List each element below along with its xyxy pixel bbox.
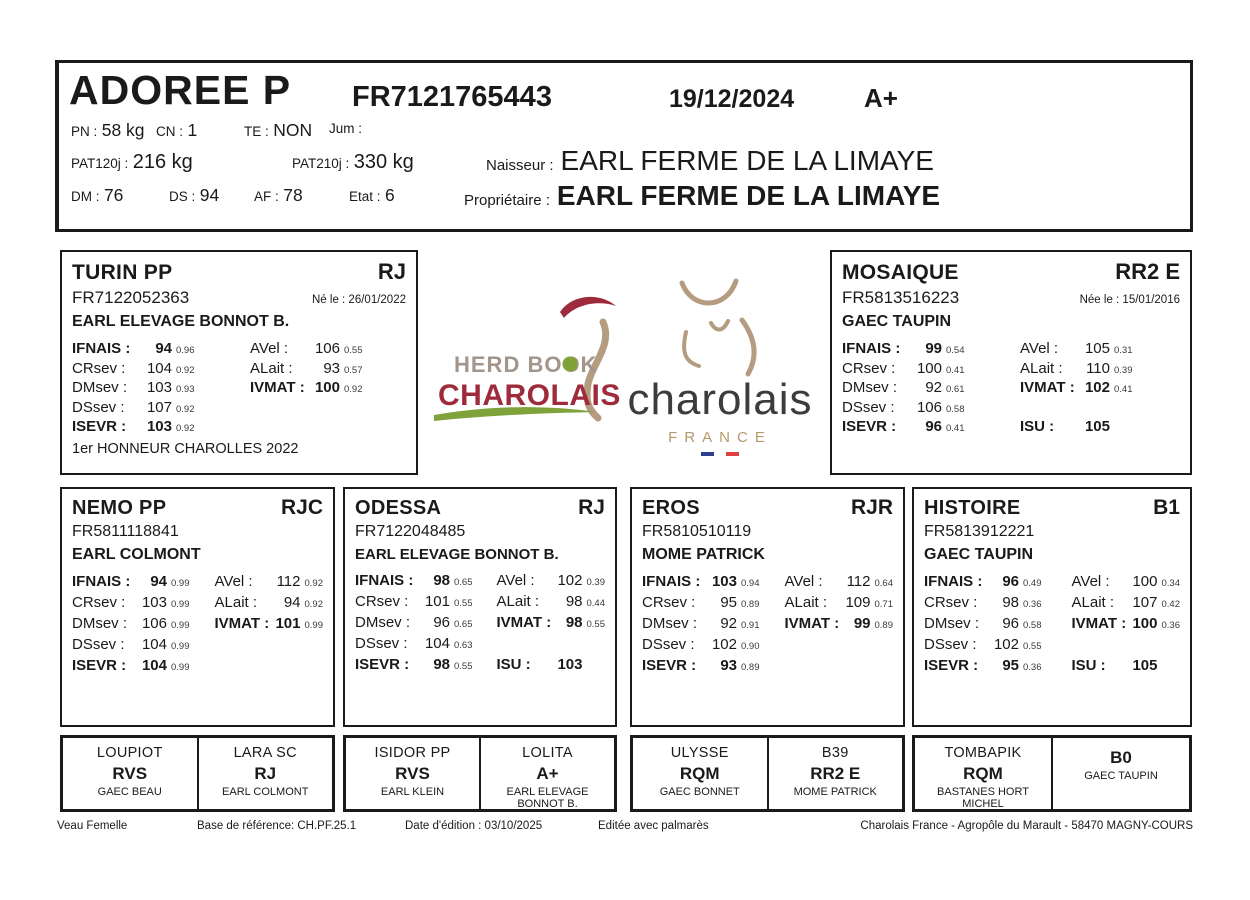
stat-value: 92 xyxy=(906,379,942,396)
stat-value: 101 xyxy=(268,615,301,632)
ggp-qualification: RVS xyxy=(63,764,197,784)
logos-area: HERD BOOK CHAROLAIS charolais FRANCE xyxy=(420,250,830,475)
af-label: AF : xyxy=(254,189,279,204)
stat-index: 0.99 xyxy=(171,641,190,652)
dam-name: MOSAIQUE xyxy=(842,261,959,285)
stat-label: ALait : xyxy=(785,594,838,611)
stat-row: DMsev :920.61 xyxy=(842,379,1020,399)
stat-label: ALait : xyxy=(497,593,550,610)
stat-label: CRsev : xyxy=(72,594,134,611)
stat-value: 96 xyxy=(417,614,450,631)
dam-stats: IFNAIS :990.54 CRsev :1000.41 DMsev :920… xyxy=(832,331,1190,438)
stat-row: ALait :1100.39 xyxy=(1020,360,1180,380)
sire-qualification: RJ xyxy=(378,259,406,285)
etat-value: 6 xyxy=(385,185,395,205)
stat-value: 95 xyxy=(704,594,737,611)
etat-label: Etat : xyxy=(349,189,381,204)
stat-value: 96 xyxy=(906,418,942,435)
birth-date: 19/12/2024 xyxy=(669,85,794,114)
stat-index: 0.41 xyxy=(946,365,965,376)
stat-value: 102 xyxy=(986,636,1019,653)
stat-index: 0.89 xyxy=(875,620,894,631)
stat-label: ALait : xyxy=(1020,360,1074,377)
stat-row: AVel :1050.31 xyxy=(1020,340,1180,360)
gp-owner: EARL COLMONT xyxy=(62,541,333,564)
stat-value: 100 xyxy=(906,360,942,377)
ggp-cell: B0 GAEC TAUPIN xyxy=(1051,738,1189,809)
stat-row: ALait :1090.71 xyxy=(785,594,894,615)
stat-label: DMsev : xyxy=(642,615,704,632)
stat-value: 99 xyxy=(838,615,871,632)
grandsire-maternal-card: EROSRJR FR5810510119 MOME PATRICK IFNAIS… xyxy=(630,487,905,727)
stat-row: IVMAT :980.55 xyxy=(497,614,606,635)
stat-value: 103 xyxy=(134,594,167,611)
sire-id: FR7122052363 xyxy=(72,288,189,308)
stat-index: 0.55 xyxy=(454,661,473,672)
stat-index: 0.58 xyxy=(946,404,965,415)
stat-value: 95 xyxy=(986,657,1019,674)
stat-label: IVMAT : xyxy=(250,379,304,396)
stat-label: CRsev : xyxy=(355,593,417,610)
dam-card: MOSAIQUE RR2 E FR5813516223 Née le : 15/… xyxy=(830,250,1192,475)
footer-address: Charolais France - Agropôle du Marault -… xyxy=(860,820,1193,832)
stat-row: IFNAIS :940.99 xyxy=(72,573,215,594)
stat-index: 0.89 xyxy=(741,662,760,673)
ggp-qualification: RJ xyxy=(199,764,333,784)
te-label: TE : xyxy=(244,124,269,139)
stat-label: DMsev : xyxy=(72,615,134,632)
naisseur-field: Naisseur : EARL FERME DE LA LIMAYE xyxy=(486,145,934,177)
granddam-maternal-card: HISTOIREB1 FR5813912221 GAEC TAUPIN IFNA… xyxy=(912,487,1192,727)
stat-value: 105 xyxy=(1074,340,1110,357)
granddam-paternal-card: ODESSARJ FR7122048485 EARL ELEVAGE BONNO… xyxy=(343,487,617,727)
stat-value: 106 xyxy=(304,340,340,357)
stat-index: 0.31 xyxy=(1114,345,1133,356)
sire-born: Né le : 26/01/2022 xyxy=(312,294,406,306)
stat-value: 104 xyxy=(134,657,167,674)
stat-label: DSsev : xyxy=(72,399,136,416)
pat210-value: 330 kg xyxy=(354,151,414,173)
stat-index: 0.92 xyxy=(305,578,324,589)
flag-red-dash xyxy=(726,452,739,456)
stat-label: AVel : xyxy=(1020,340,1074,357)
gp-qualification: B1 xyxy=(1153,496,1180,520)
stat-row: IFNAIS :940.96 xyxy=(72,340,250,360)
sire-card: TURIN PP RJ FR7122052363 Né le : 26/01/2… xyxy=(60,250,418,475)
stat-label: ISEVR : xyxy=(72,418,136,435)
stat-value: 110 xyxy=(1074,360,1110,377)
gp-owner: GAEC TAUPIN xyxy=(914,541,1190,564)
proprietaire-label: Propriétaire : xyxy=(464,192,550,209)
ggp-cell: LOUPIOT RVS GAEC BEAU xyxy=(63,738,197,809)
cow-head-right-curve xyxy=(742,320,754,374)
gp-name: HISTOIRE xyxy=(924,497,1021,520)
cow-head-top-curve xyxy=(682,281,736,303)
charolais-france-logo: charolais FRANCE xyxy=(627,281,812,456)
ggp-qualification: RR2 E xyxy=(769,764,903,784)
stat-label: ISEVR : xyxy=(72,657,134,674)
stat-row: DSsev :1020.55 xyxy=(924,636,1072,657)
sire-owner: EARL ELEVAGE BONNOT B. xyxy=(62,308,416,331)
ggp-qualification: A+ xyxy=(481,764,614,784)
ggp-qualification: RQM xyxy=(633,764,767,784)
stat-label: IFNAIS : xyxy=(642,573,704,590)
gp-id: FR5810510119 xyxy=(642,523,751,541)
stat-label: DMsev : xyxy=(72,379,136,396)
stat-row: AVel :1120.92 xyxy=(215,573,324,594)
stat-value: 107 xyxy=(136,399,172,416)
stat-value: 103 xyxy=(136,418,172,435)
stat-index: 0.36 xyxy=(1023,599,1042,610)
stat-index: 0.57 xyxy=(344,365,363,376)
stat-index: 0.99 xyxy=(305,620,324,631)
ggp-cell: B39 RR2 E MOME PATRICK xyxy=(767,738,903,809)
stat-index: 0.54 xyxy=(946,345,965,356)
pn-value: 58 kg xyxy=(102,120,145,140)
charolais-text: charolais xyxy=(627,375,812,424)
stat-value: 112 xyxy=(268,573,301,590)
stat-label: IFNAIS : xyxy=(924,573,986,590)
stat-value: 104 xyxy=(417,635,450,652)
pat120-field: PAT120j : 216 kg xyxy=(71,151,193,174)
jum-label: Jum : xyxy=(329,121,362,136)
stat-label: ISEVR : xyxy=(355,656,417,673)
pn-label: PN : xyxy=(71,124,97,139)
naisseur-value: EARL FERME DE LA LIMAYE xyxy=(561,145,934,177)
stat-row: DMsev :1060.99 xyxy=(72,615,215,636)
stat-value: 105 xyxy=(1074,418,1110,435)
stat-row: ALait :980.44 xyxy=(497,593,606,614)
stat-label: IVMAT : xyxy=(497,614,550,631)
ggp-owner: GAEC TAUPIN xyxy=(1053,771,1189,783)
gp-name: NEMO PP xyxy=(72,497,166,520)
stat-label: AVel : xyxy=(215,573,268,590)
ggp-owner: EARL KLEIN xyxy=(346,787,479,799)
stat-index: 0.39 xyxy=(587,577,606,588)
sire-head: TURIN PP RJ xyxy=(62,252,416,285)
stat-index: 0.94 xyxy=(741,578,760,589)
stat-row: IVMAT :1000.92 xyxy=(250,379,406,399)
stat-label: ISEVR : xyxy=(924,657,986,674)
stat-row: CRsev :950.89 xyxy=(642,594,785,615)
stat-index: 0.55 xyxy=(587,619,606,630)
stat-row: ISEVR :980.55 xyxy=(355,656,497,677)
stat-row: AVel :1060.55 xyxy=(250,340,406,360)
ggp-cell: TOMBAPIK RQM BASTANES HORT MICHEL xyxy=(915,738,1051,809)
stat-index: 0.58 xyxy=(1023,620,1042,631)
stat-label: DSsev : xyxy=(642,636,704,653)
af-field: AF : 78 xyxy=(254,185,303,206)
stat-label: CRsev : xyxy=(642,594,704,611)
stat-index: 0.63 xyxy=(454,640,473,651)
stat-index: 0.99 xyxy=(171,620,190,631)
gp-name: ODESSA xyxy=(355,497,441,520)
stat-row: CRsev :1000.41 xyxy=(842,360,1020,380)
stat-index: 0.64 xyxy=(875,578,894,589)
stat-label: DMsev : xyxy=(924,615,986,632)
stat-value: 102 xyxy=(550,572,583,589)
stat-value: 100 xyxy=(304,379,340,396)
ggp-name: LARA SC xyxy=(199,745,333,761)
stat-value: 106 xyxy=(134,615,167,632)
stat-value: 112 xyxy=(838,573,871,590)
pat120-value: 216 kg xyxy=(133,151,193,173)
stat-label: IVMAT : xyxy=(1020,379,1074,396)
stat-label: IFNAIS : xyxy=(72,340,136,357)
stat-value: 109 xyxy=(838,594,871,611)
ggp-cell: LARA SC RJ EARL COLMONT xyxy=(197,738,333,809)
stat-label: AVel : xyxy=(785,573,838,590)
stat-value: 104 xyxy=(136,360,172,377)
sire-stats: IFNAIS :940.96 CRsev :1040.92 DMsev :103… xyxy=(62,331,416,438)
stat-index: 0.99 xyxy=(171,662,190,673)
ggp-name: ULYSSE xyxy=(633,745,767,761)
stat-row: ISEVR :960.41 xyxy=(842,418,1020,438)
stat-index: 0.61 xyxy=(946,384,965,395)
stat-row: IVMAT :1010.99 xyxy=(215,615,324,636)
flag-blue-dash xyxy=(701,452,714,456)
stat-value: 102 xyxy=(1074,379,1110,396)
stat-row: CRsev :1030.99 xyxy=(72,594,215,615)
gp-qualification: RJC xyxy=(281,496,323,520)
stat-row: IVMAT :1020.41 xyxy=(1020,379,1180,399)
stat-index: 0.92 xyxy=(176,423,195,434)
stat-label: DMsev : xyxy=(842,379,906,396)
cow-horn-shape xyxy=(560,297,616,318)
stat-value: 94 xyxy=(134,573,167,590)
stat-value: 98 xyxy=(550,593,583,610)
stat-value: 104 xyxy=(134,636,167,653)
stat-index: 0.41 xyxy=(946,423,965,434)
stat-label: IVMAT : xyxy=(785,615,838,632)
footer-edition: Date d'édition : 03/10/2025 xyxy=(405,820,542,832)
stat-index: 0.42 xyxy=(1162,599,1181,610)
footer-palmares: Editée avec palmarès xyxy=(598,820,709,832)
ggp-qualification: RVS xyxy=(346,764,479,784)
ds-value: 94 xyxy=(200,185,219,205)
stat-row: AVel :1020.39 xyxy=(497,572,606,593)
gp-name: EROS xyxy=(642,497,700,520)
stat-index: 0.90 xyxy=(741,641,760,652)
stat-label: IVMAT : xyxy=(215,615,268,632)
stat-row: ISEVR :950.36 xyxy=(924,657,1072,678)
stat-index: 0.96 xyxy=(176,345,195,356)
stat-value: 103 xyxy=(136,379,172,396)
stat-label: DMsev : xyxy=(355,614,417,631)
ggp-name: LOUPIOT xyxy=(63,745,197,761)
stat-label: AVel : xyxy=(497,572,550,589)
dam-born: Née le : 15/01/2016 xyxy=(1080,294,1180,306)
ggp-qualification: B0 xyxy=(1053,748,1189,768)
stat-index: 0.55 xyxy=(1023,641,1042,652)
ds-label: DS : xyxy=(169,189,195,204)
jum-field: Jum : xyxy=(329,120,362,138)
dam-owner: GAEC TAUPIN xyxy=(832,308,1190,331)
sire-name: TURIN PP xyxy=(72,261,172,285)
stat-label: ISU : xyxy=(1072,657,1125,674)
ggp-pair-3: ULYSSE RQM GAEC BONNET B39 RR2 E MOME PA… xyxy=(630,735,905,812)
stat-value: 101 xyxy=(417,593,450,610)
stat-row: ISU :105 xyxy=(1072,657,1181,678)
dam-id: FR5813516223 xyxy=(842,288,959,308)
af-value: 78 xyxy=(283,185,302,205)
stat-row: DSsev :1040.99 xyxy=(72,636,215,657)
stat-index: 0.65 xyxy=(454,577,473,588)
stat-index: 0.99 xyxy=(171,599,190,610)
stat-row: ISU :103 xyxy=(497,656,606,677)
stat-row: CRsev :980.36 xyxy=(924,594,1072,615)
ggp-name: B39 xyxy=(769,745,903,761)
stat-row-spacer xyxy=(1020,399,1180,419)
stat-row: DMsev :920.91 xyxy=(642,615,785,636)
dam-qualification: RR2 E xyxy=(1115,259,1180,285)
stat-label: IVMAT : xyxy=(1072,615,1125,632)
proprietaire-value: EARL FERME DE LA LIMAYE xyxy=(557,180,940,212)
stat-label: IFNAIS : xyxy=(72,573,134,590)
green-dot-icon xyxy=(563,357,578,372)
stat-value: 105 xyxy=(1125,657,1158,674)
ggp-name: TOMBAPIK xyxy=(915,745,1051,761)
stat-row: ALait :1070.42 xyxy=(1072,594,1181,615)
stat-value: 103 xyxy=(550,656,583,673)
stat-row: DMsev :960.58 xyxy=(924,615,1072,636)
stat-index: 0.91 xyxy=(741,620,760,631)
stat-index: 0.92 xyxy=(176,404,195,415)
dm-value: 76 xyxy=(104,185,123,205)
proprietaire-field: Propriétaire : EARL FERME DE LA LIMAYE xyxy=(464,180,940,212)
stat-index: 0.55 xyxy=(344,345,363,356)
cn-field: CN : 1 xyxy=(156,120,197,141)
stat-value: 99 xyxy=(906,340,942,357)
ggp-owner: EARL COLMONT xyxy=(199,787,333,799)
charolais-red-text: CHAROLAIS xyxy=(438,379,621,412)
stat-row: AVel :1120.64 xyxy=(785,573,894,594)
stat-row: DSsev :1060.58 xyxy=(842,399,1020,419)
stat-label: ALait : xyxy=(250,360,304,377)
gp-id: FR7122048485 xyxy=(355,523,465,541)
dm-field: DM : 76 xyxy=(71,185,123,206)
stat-label: ALait : xyxy=(215,594,268,611)
stat-row-spacer xyxy=(1072,636,1181,657)
stat-index: 0.92 xyxy=(176,365,195,376)
stat-index: 0.44 xyxy=(587,598,606,609)
stat-value: 107 xyxy=(1125,594,1158,611)
gp-id: FR5811118841 xyxy=(72,523,179,541)
stat-row: DSsev :1040.63 xyxy=(355,635,497,656)
cn-label: CN : xyxy=(156,124,183,139)
animal-id: FR7121765443 xyxy=(352,81,552,114)
stat-row: ISEVR :1040.99 xyxy=(72,657,215,678)
ggp-owner: MOME PATRICK xyxy=(769,787,903,799)
ggp-owner: GAEC BEAU xyxy=(63,787,197,799)
stat-index: 0.36 xyxy=(1023,662,1042,673)
pn-field: PN : 58 kg xyxy=(71,120,145,141)
stat-index: 0.92 xyxy=(344,384,363,395)
stat-row: DMsev :1030.93 xyxy=(72,379,250,399)
stat-row: AVel :1000.34 xyxy=(1072,573,1181,594)
stat-label: ISU : xyxy=(497,656,550,673)
stat-row: ISEVR :930.89 xyxy=(642,657,785,678)
grandsire-paternal-card: NEMO PPRJC FR5811118841 EARL COLMONT IFN… xyxy=(60,487,335,727)
dam-head: MOSAIQUE RR2 E xyxy=(832,252,1190,285)
stat-row: CRsev :1040.92 xyxy=(72,360,250,380)
stat-value: 106 xyxy=(906,399,942,416)
footer-base: Base de référence: CH.PF.25.1 xyxy=(197,820,356,832)
stat-label: DSsev : xyxy=(924,636,986,653)
ggp-name: LOLITA xyxy=(481,745,614,761)
stat-label: CRsev : xyxy=(842,360,906,377)
sire-palmares-note: 1er HONNEUR CHAROLLES 2022 xyxy=(62,438,416,457)
stat-label: ISEVR : xyxy=(842,418,906,435)
stat-index: 0.34 xyxy=(1162,578,1181,589)
stat-row: DMsev :960.65 xyxy=(355,614,497,635)
te-field: TE : NON xyxy=(244,120,312,141)
gp-id: FR5813912221 xyxy=(924,523,1034,541)
stat-row: IFNAIS :990.54 xyxy=(842,340,1020,360)
stat-row: IFNAIS :980.65 xyxy=(355,572,497,593)
animal-header-box: ADOREE P FR7121765443 19/12/2024 A+ PN :… xyxy=(55,60,1193,232)
stat-value: 94 xyxy=(268,594,301,611)
stat-label: CRsev : xyxy=(924,594,986,611)
ggp-owner: EARL ELEVAGE BONNOT B. xyxy=(481,787,614,810)
stat-row: ISU :105 xyxy=(1020,418,1180,438)
stat-index: 0.93 xyxy=(176,384,195,395)
stat-row-spacer xyxy=(497,635,606,656)
stat-value: 100 xyxy=(1125,615,1158,632)
stat-index: 0.99 xyxy=(171,578,190,589)
stat-value: 96 xyxy=(986,573,1019,590)
cow-head-inner-curve xyxy=(711,321,728,330)
ggp-cell: LOLITA A+ EARL ELEVAGE BONNOT B. xyxy=(479,738,614,809)
stat-value: 96 xyxy=(986,615,1019,632)
gp-owner: MOME PATRICK xyxy=(632,541,903,564)
stat-label: DSsev : xyxy=(355,635,417,652)
stat-value: 98 xyxy=(986,594,1019,611)
naisseur-label: Naisseur : xyxy=(486,157,554,174)
stat-label: IFNAIS : xyxy=(842,340,906,357)
sire-id-row: FR7122052363 Né le : 26/01/2022 xyxy=(62,285,416,308)
dm-label: DM : xyxy=(71,189,100,204)
cn-value: 1 xyxy=(187,120,197,140)
stat-index: 0.39 xyxy=(1114,365,1133,376)
pat120-label: PAT120j : xyxy=(71,156,128,171)
grade-badge: A+ xyxy=(864,83,898,114)
stat-label: ISEVR : xyxy=(642,657,704,674)
stat-row: CRsev :1010.55 xyxy=(355,593,497,614)
dam-id-row: FR5813516223 Née le : 15/01/2016 xyxy=(832,285,1190,308)
stat-label: ISU : xyxy=(1020,418,1074,435)
stat-row: ALait :930.57 xyxy=(250,360,406,380)
stat-value: 94 xyxy=(136,340,172,357)
stat-index: 0.41 xyxy=(1114,384,1133,395)
stat-label: DSsev : xyxy=(842,399,906,416)
stat-label: IFNAIS : xyxy=(355,572,417,589)
stat-index: 0.71 xyxy=(875,599,894,610)
pat210-label: PAT210j : xyxy=(292,156,349,171)
te-value: NON xyxy=(273,120,312,140)
stat-value: 93 xyxy=(704,657,737,674)
stat-label: AVel : xyxy=(250,340,304,357)
pat210-field: PAT210j : 330 kg xyxy=(292,151,414,174)
stat-index: 0.89 xyxy=(741,599,760,610)
gp-owner: EARL ELEVAGE BONNOT B. xyxy=(345,541,615,563)
stat-label: AVel : xyxy=(1072,573,1125,590)
stat-index: 0.65 xyxy=(454,619,473,630)
ggp-qualification: RQM xyxy=(915,764,1051,784)
ggp-pair-2: ISIDOR PP RVS EARL KLEIN LOLITA A+ EARL … xyxy=(343,735,617,812)
stat-row: IVMAT :990.89 xyxy=(785,615,894,636)
stat-label: ALait : xyxy=(1072,594,1125,611)
